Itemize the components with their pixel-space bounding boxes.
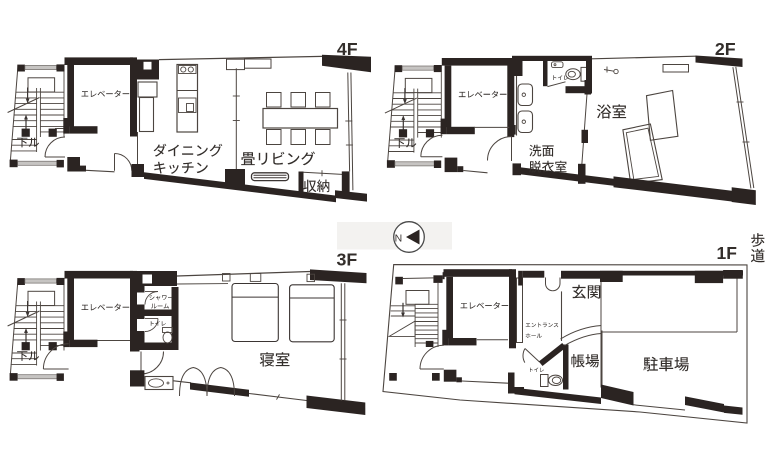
svg-text:2F: 2F [715,39,736,59]
svg-text:3F: 3F [337,249,358,269]
svg-text:1F: 1F [717,243,738,263]
svg-text:N: N [395,232,403,244]
